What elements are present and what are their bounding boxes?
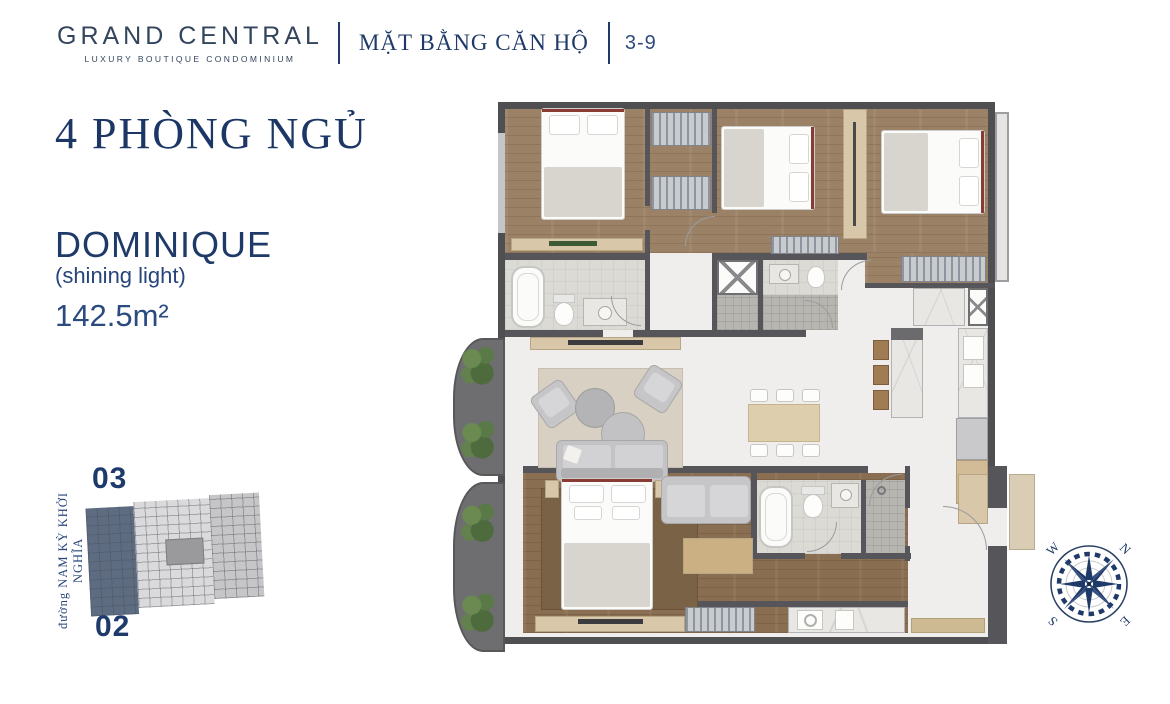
wall xyxy=(712,109,717,213)
wardrobe-icon xyxy=(685,607,755,632)
compass-south-label: S xyxy=(1045,613,1061,629)
wall xyxy=(905,546,910,561)
site-map-plate xyxy=(85,493,265,616)
kitchen-sink-icon xyxy=(963,364,984,388)
dining-chair-icon xyxy=(802,444,820,457)
sofa-icon xyxy=(556,440,668,482)
wall xyxy=(633,330,758,337)
toilet-icon xyxy=(554,302,574,326)
wall xyxy=(712,253,717,337)
closet-icon xyxy=(651,176,711,210)
entry-wall xyxy=(988,466,1007,644)
toilet-icon xyxy=(803,494,823,518)
brand-logo: GRAND CENTRAL LUXURY BOUTIQUE CONDOMINIU… xyxy=(57,22,323,64)
plant-icon xyxy=(459,590,499,636)
vanity-sink xyxy=(769,264,799,284)
dining-chair-icon xyxy=(776,444,794,457)
wall xyxy=(905,466,910,508)
shaft-floor xyxy=(717,295,758,330)
plant-icon xyxy=(459,418,499,462)
wall xyxy=(645,109,650,206)
utility-shaft-icon xyxy=(968,288,988,326)
bar-stool-icon xyxy=(873,340,889,360)
bed-icon xyxy=(721,126,815,210)
side-table-icon xyxy=(683,538,753,574)
compass-north-label: N xyxy=(1117,540,1135,558)
loveseat-icon xyxy=(661,476,751,524)
stack-label-02: 02 xyxy=(95,610,130,644)
wardrobe-icon xyxy=(771,236,839,254)
ac-ledge xyxy=(995,112,1009,282)
compass-east-label: E xyxy=(1117,613,1133,629)
tv-icon xyxy=(578,619,643,624)
nightstand-icon xyxy=(545,480,559,498)
bed-icon xyxy=(881,130,985,214)
wall xyxy=(505,253,645,260)
dining-chair-icon xyxy=(750,444,768,457)
wall xyxy=(758,260,763,337)
header: GRAND CENTRAL LUXURY BOUTIQUE CONDOMINIU… xyxy=(57,22,657,64)
street-label: đường NAM KỲ KHỞI NGHĨA xyxy=(56,468,86,653)
kitchen-island xyxy=(891,328,923,418)
wardrobe-icon xyxy=(901,256,986,282)
entry-opening xyxy=(988,508,1007,546)
unit-name: DOMINIQUE xyxy=(55,224,272,266)
bar-stool-icon xyxy=(873,390,889,410)
wall xyxy=(717,253,867,260)
window xyxy=(498,133,505,233)
bedrooms-title: 4 PHÒNG NGỦ xyxy=(55,108,368,159)
tv-icon xyxy=(568,340,643,345)
site-map-highlighted-unit xyxy=(86,506,140,616)
page-title: MẶT BẰNG CĂN HỘ xyxy=(355,30,593,56)
brand-name: GRAND CENTRAL xyxy=(57,22,323,51)
unit-name-meaning: (shining light) xyxy=(55,263,186,289)
utility-shaft-icon xyxy=(717,260,758,295)
fridge-icon xyxy=(956,418,988,460)
tv-panel xyxy=(853,122,856,226)
floor-plan xyxy=(453,88,1045,688)
toilet-icon xyxy=(807,266,825,288)
dining-chair-icon xyxy=(776,389,794,402)
compass-icon: W N S E xyxy=(1038,533,1140,635)
site-map-core xyxy=(165,538,204,566)
bar-stool-icon xyxy=(873,365,889,385)
header-divider xyxy=(338,22,340,64)
wall xyxy=(751,553,805,559)
dining-chair-icon xyxy=(750,389,768,402)
bathtub-icon xyxy=(511,266,545,328)
master-bed-icon xyxy=(561,478,653,610)
wall xyxy=(763,330,806,337)
plant-icon xyxy=(459,344,499,388)
brand-tagline: LUXURY BOUTIQUE CONDOMINIUM xyxy=(85,54,296,64)
console-decor xyxy=(549,241,597,246)
stack-label-03: 03 xyxy=(92,462,127,496)
unit-area: 142.5m² xyxy=(55,298,169,334)
island-cooktop xyxy=(891,328,923,340)
vanity-sink xyxy=(831,483,859,508)
washer-icon xyxy=(797,610,823,630)
unit-code: 3-9 xyxy=(625,32,657,55)
kitchen-counter xyxy=(913,288,965,326)
wall xyxy=(505,330,603,337)
kitchen-sink-icon xyxy=(963,336,984,360)
bed-icon xyxy=(541,108,625,220)
closet-icon xyxy=(651,112,711,146)
site-map-right-block xyxy=(209,493,264,599)
header-divider xyxy=(608,22,610,64)
dining-chair-icon xyxy=(802,389,820,402)
compass-west-label: W xyxy=(1043,538,1063,558)
wall xyxy=(645,230,650,337)
wall xyxy=(841,553,911,559)
wall xyxy=(861,480,866,555)
dining-table-icon xyxy=(748,404,820,442)
entry-lobby-floor xyxy=(1009,474,1035,550)
doormat xyxy=(911,618,985,633)
bathtub-icon xyxy=(759,486,793,548)
plant-icon xyxy=(459,500,499,546)
laundry-sink-icon xyxy=(835,610,854,630)
